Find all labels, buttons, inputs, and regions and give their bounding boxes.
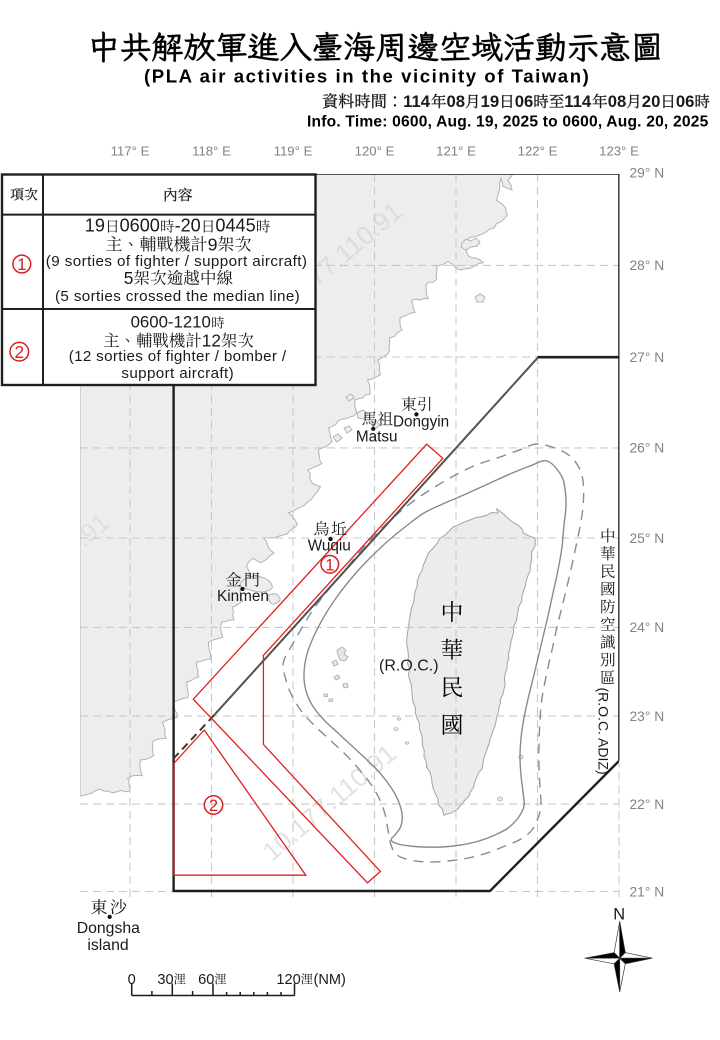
svg-text:119° E: 119° E [274,144,313,159]
svg-text:1: 1 [325,556,334,574]
svg-text:Dongsha: Dongsha [77,920,140,937]
svg-text:24° N: 24° N [630,620,665,635]
svg-text:123° E: 123° E [599,144,639,159]
svg-text:0600: 0600 [120,216,160,236]
svg-text:21° N: 21° N [630,884,665,899]
svg-text:114: 114 [564,92,592,111]
svg-text:(NM): (NM) [314,972,346,988]
svg-text:(PLA air activities in the vic: (PLA air activities in the vicinity of T… [144,66,590,87]
svg-text:Dongyin: Dongyin [393,414,449,431]
svg-text:23° N: 23° N [630,709,665,724]
svg-text:1: 1 [17,255,26,274]
svg-text:20: 20 [642,92,661,111]
svg-text:9: 9 [208,234,218,254]
svg-text:25° N: 25° N [630,531,665,546]
svg-text:121° E: 121° E [436,144,476,159]
svg-text:(12 sorties of fighter / bombe: (12 sorties of fighter / bomber / [69,348,287,365]
svg-text:27° N: 27° N [630,350,665,365]
svg-text:22° N: 22° N [630,797,665,812]
svg-text:-20: -20 [175,216,201,236]
svg-text:117° E: 117° E [111,144,150,159]
svg-text:(R.O.C. ADIZ): (R.O.C. ADIZ) [596,688,612,775]
svg-text:Matsu: Matsu [356,429,398,446]
svg-text:06: 06 [676,92,695,111]
svg-text:(R.O.C.): (R.O.C.) [379,657,439,674]
svg-text:0600-1210: 0600-1210 [131,313,211,332]
svg-text:08: 08 [447,92,466,111]
svg-text:122° E: 122° E [518,144,558,159]
svg-text:5: 5 [124,268,134,288]
svg-text:120: 120 [276,972,300,988]
svg-text:60: 60 [198,972,214,988]
svg-text:island: island [87,937,128,954]
svg-text:Info. Time: 0600, Aug. 19, 202: Info. Time: 0600, Aug. 19, 2025 to 0600,… [307,113,709,130]
svg-text:2: 2 [209,797,218,815]
svg-text:118° E: 118° E [192,144,231,159]
svg-text:08: 08 [608,92,627,111]
svg-text:0445: 0445 [215,216,255,236]
svg-text:26° N: 26° N [630,441,665,456]
svg-text:(5 sorties crossed the median: (5 sorties crossed the median line) [55,288,300,305]
svg-text:28° N: 28° N [630,258,665,273]
svg-text:0: 0 [128,972,136,988]
svg-text:114: 114 [403,92,431,111]
svg-text:19: 19 [85,216,105,236]
svg-text:N: N [613,905,625,923]
svg-text:30: 30 [157,972,173,988]
svg-text:29° N: 29° N [630,166,665,181]
svg-text:06: 06 [515,92,534,111]
svg-text:(9 sorties of fighter / suppor: (9 sorties of fighter / support aircraft… [46,253,308,270]
svg-text:support aircraft): support aircraft) [121,365,234,382]
svg-text:2: 2 [15,342,25,362]
svg-text:120° E: 120° E [355,144,395,159]
svg-text:19: 19 [481,92,500,111]
